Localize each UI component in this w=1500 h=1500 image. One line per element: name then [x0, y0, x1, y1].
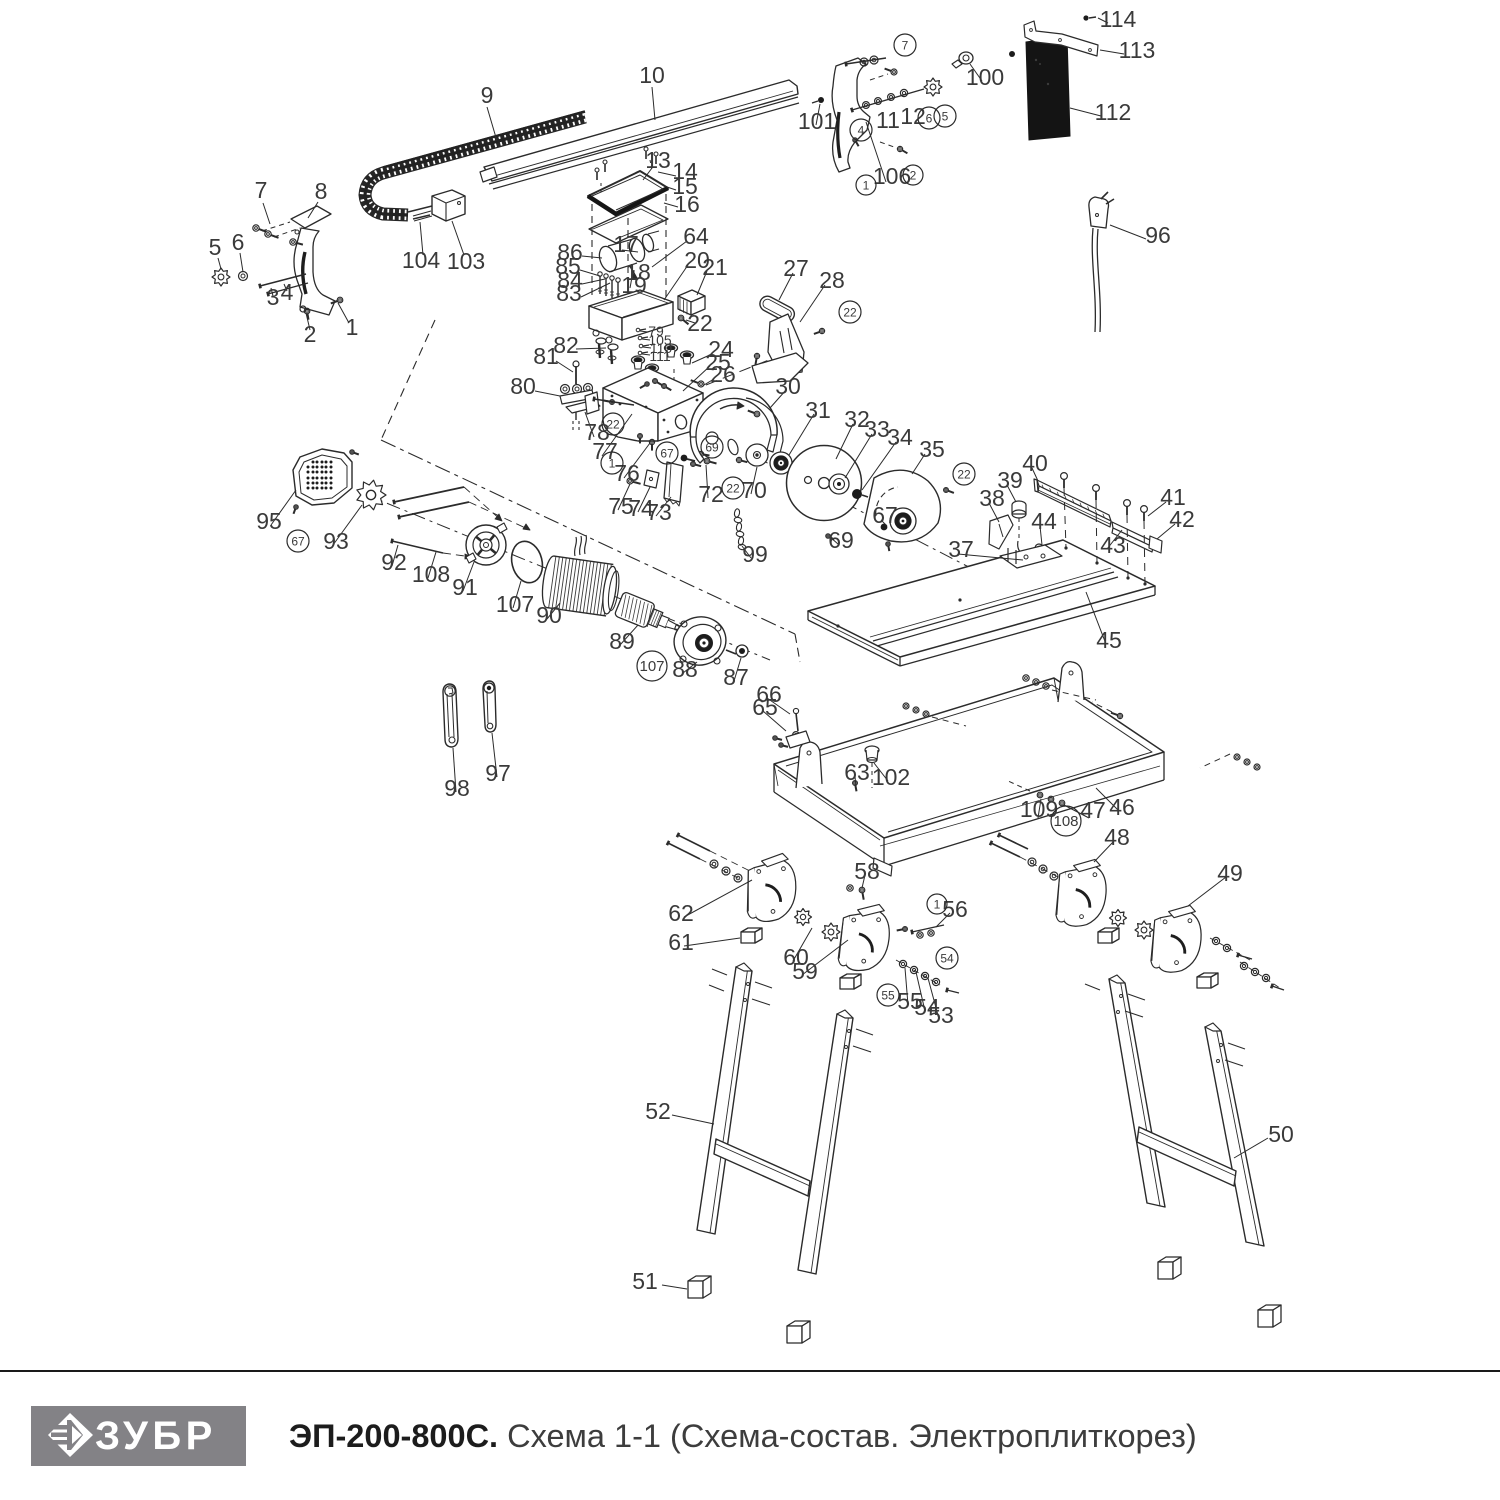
- svg-text:1: 1: [934, 898, 941, 912]
- svg-text:92: 92: [381, 549, 407, 575]
- svg-text:62: 62: [668, 900, 694, 926]
- svg-text:64: 64: [683, 223, 709, 249]
- svg-text:35: 35: [919, 436, 945, 462]
- svg-text:63: 63: [844, 759, 870, 785]
- svg-text:67: 67: [660, 447, 674, 461]
- svg-text:2: 2: [910, 169, 917, 183]
- svg-text:2: 2: [304, 321, 317, 347]
- svg-text:22: 22: [957, 468, 971, 482]
- svg-text:9: 9: [481, 82, 494, 108]
- svg-text:19: 19: [621, 272, 647, 298]
- svg-text:21: 21: [702, 254, 728, 280]
- svg-text:45: 45: [1096, 627, 1122, 653]
- svg-text:69: 69: [705, 441, 719, 455]
- svg-text:40: 40: [1022, 450, 1048, 476]
- svg-text:101: 101: [798, 108, 836, 134]
- svg-text:12: 12: [900, 103, 926, 129]
- svg-text:10: 10: [639, 62, 665, 88]
- svg-text:54: 54: [940, 952, 954, 966]
- svg-text:96: 96: [1145, 222, 1171, 248]
- svg-text:80: 80: [510, 373, 536, 399]
- svg-text:55: 55: [881, 989, 895, 1003]
- svg-text:103: 103: [447, 248, 485, 274]
- svg-text:47: 47: [1080, 797, 1106, 823]
- svg-text:107: 107: [496, 591, 534, 617]
- svg-text:27: 27: [783, 255, 809, 281]
- svg-text:11: 11: [876, 107, 900, 133]
- svg-text:6: 6: [232, 229, 245, 255]
- svg-text:99: 99: [742, 541, 768, 567]
- svg-text:1: 1: [609, 457, 616, 471]
- svg-text:6: 6: [926, 112, 933, 126]
- svg-text:108: 108: [412, 561, 450, 587]
- svg-text:37: 37: [948, 536, 974, 562]
- svg-text:1: 1: [346, 314, 359, 340]
- svg-text:22: 22: [606, 418, 620, 432]
- svg-text:109: 109: [1020, 796, 1058, 822]
- svg-text:5: 5: [942, 110, 949, 124]
- svg-text:73: 73: [646, 499, 672, 525]
- svg-text:70: 70: [741, 477, 767, 503]
- svg-text:87: 87: [723, 664, 749, 690]
- svg-text:76: 76: [614, 460, 640, 486]
- svg-text:108: 108: [1053, 813, 1078, 830]
- svg-text:8: 8: [315, 178, 328, 204]
- svg-text:69: 69: [828, 527, 854, 553]
- svg-text:93: 93: [323, 528, 349, 554]
- svg-text:3: 3: [267, 284, 280, 310]
- svg-text:111: 111: [649, 348, 670, 364]
- svg-text:61: 61: [668, 929, 694, 955]
- svg-text:39: 39: [997, 467, 1023, 493]
- svg-text:5: 5: [209, 234, 222, 260]
- svg-text:53: 53: [928, 1002, 954, 1028]
- svg-text:22: 22: [726, 482, 740, 496]
- svg-text:97: 97: [485, 760, 511, 786]
- svg-text:88: 88: [672, 656, 698, 682]
- svg-text:49: 49: [1217, 860, 1243, 886]
- svg-text:52: 52: [645, 1098, 671, 1124]
- svg-text:91: 91: [452, 574, 478, 600]
- svg-text:31: 31: [805, 397, 831, 423]
- svg-text:113: 113: [1119, 37, 1156, 63]
- svg-text:7: 7: [255, 177, 268, 203]
- svg-text:44: 44: [1031, 508, 1057, 534]
- svg-text:107: 107: [639, 658, 664, 675]
- svg-text:106: 106: [873, 163, 911, 189]
- svg-text:42: 42: [1169, 506, 1195, 532]
- svg-text:7: 7: [902, 39, 909, 53]
- svg-text:104: 104: [402, 247, 441, 273]
- svg-text:13: 13: [645, 147, 671, 173]
- svg-text:72: 72: [698, 481, 724, 507]
- svg-text:65: 65: [752, 694, 778, 720]
- svg-text:1: 1: [863, 179, 870, 193]
- svg-text:100: 100: [966, 64, 1004, 90]
- svg-text:81: 81: [533, 343, 559, 369]
- svg-text:28: 28: [819, 267, 845, 293]
- svg-text:58: 58: [854, 858, 880, 884]
- svg-text:17: 17: [613, 231, 639, 257]
- svg-text:48: 48: [1104, 824, 1130, 850]
- svg-text:46: 46: [1109, 794, 1135, 820]
- svg-text:22: 22: [687, 310, 713, 336]
- svg-text:89: 89: [609, 628, 635, 654]
- svg-text:43: 43: [1100, 532, 1126, 558]
- svg-text:50: 50: [1268, 1121, 1294, 1147]
- svg-text:67: 67: [872, 502, 898, 528]
- svg-text:30: 30: [775, 373, 801, 399]
- svg-text:95: 95: [256, 508, 282, 534]
- svg-text:4: 4: [281, 279, 294, 305]
- svg-text:59: 59: [792, 958, 818, 984]
- svg-text:16: 16: [674, 191, 700, 217]
- svg-text:98: 98: [444, 775, 470, 801]
- svg-text:22: 22: [843, 306, 857, 320]
- svg-text:114: 114: [1100, 6, 1137, 32]
- svg-text:26: 26: [710, 361, 736, 387]
- svg-text:33: 33: [864, 416, 890, 442]
- svg-text:102: 102: [872, 764, 910, 790]
- svg-text:112: 112: [1095, 99, 1132, 125]
- svg-text:34: 34: [887, 424, 913, 450]
- svg-text:83: 83: [556, 280, 582, 306]
- svg-text:67: 67: [291, 535, 305, 549]
- svg-text:ЗУБР: ЗУБР: [95, 1414, 217, 1458]
- svg-text:90: 90: [536, 602, 562, 628]
- svg-text:51: 51: [632, 1268, 658, 1294]
- svg-text:4: 4: [858, 124, 865, 138]
